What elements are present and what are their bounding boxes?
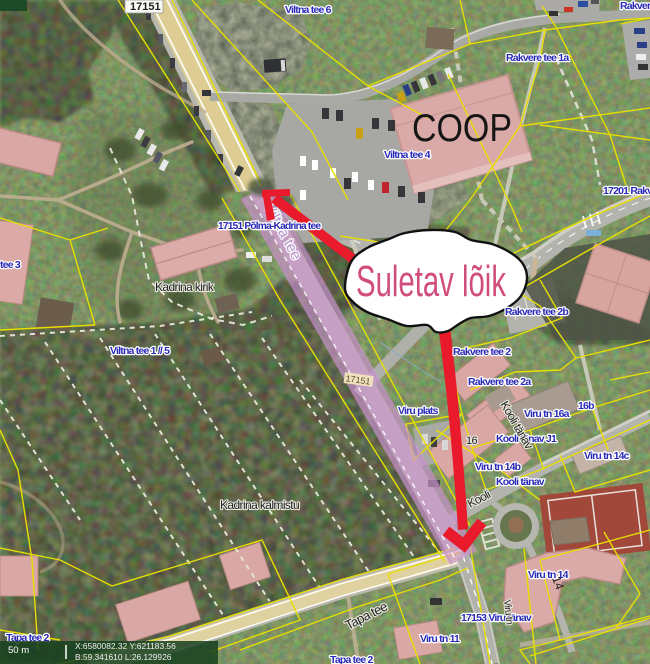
- svg-text:tee 3: tee 3: [0, 259, 21, 271]
- svg-text:Viru tn 11: Viru tn 11: [420, 633, 460, 645]
- svg-text:Kadrina kirik: Kadrina kirik: [155, 280, 215, 294]
- svg-text:Rakvere tee 2b: Rakvere tee 2b: [505, 306, 568, 318]
- svg-text:X:6580082.32 Y:621183.56: X:6580082.32 Y:621183.56: [75, 641, 176, 651]
- svg-text:Viru plats: Viru plats: [398, 405, 439, 417]
- svg-text:COOP: COOP: [412, 107, 512, 150]
- svg-text:50 m: 50 m: [8, 645, 29, 656]
- svg-text:17151: 17151: [130, 1, 161, 13]
- svg-text:Viltna tee 6: Viltna tee 6: [285, 4, 332, 16]
- svg-text:17201 Rakv: 17201 Rakv: [603, 185, 650, 197]
- svg-text:17153 Viru tänav: 17153 Viru tänav: [461, 612, 532, 624]
- svg-text:Rakvere: Rakvere: [620, 0, 650, 12]
- svg-text:B:59.341610 L:26.129926: B:59.341610 L:26.129926: [75, 652, 172, 662]
- svg-text:Kooli tänav: Kooli tänav: [496, 476, 545, 488]
- svg-text:Tapa tee 2: Tapa tee 2: [330, 654, 374, 664]
- svg-text:Viltna tee 4: Viltna tee 4: [384, 149, 431, 161]
- svg-text:16b: 16b: [578, 400, 594, 412]
- svg-text:Viltna tee 1 // 5: Viltna tee 1 // 5: [110, 345, 170, 357]
- svg-text:Viru tn 14b: Viru tn 14b: [475, 461, 521, 473]
- svg-text:17151 Põlma-Kadrina tee: 17151 Põlma-Kadrina tee: [218, 221, 321, 232]
- svg-text:Suletav lõik: Suletav lõik: [356, 257, 507, 306]
- svg-text:Rakvere tee 2: Rakvere tee 2: [453, 346, 511, 358]
- svg-text:Rakvere tee 1a: Rakvere tee 1a: [506, 52, 569, 64]
- svg-text:Viru tn 16a: Viru tn 16a: [524, 408, 570, 420]
- svg-text:16: 16: [466, 435, 478, 447]
- svg-text:Rakvere tee 2a: Rakvere tee 2a: [468, 376, 531, 388]
- svg-text:Kadrina kalmistu: Kadrina kalmistu: [220, 498, 299, 512]
- svg-text:Viru tn 14c: Viru tn 14c: [584, 450, 630, 462]
